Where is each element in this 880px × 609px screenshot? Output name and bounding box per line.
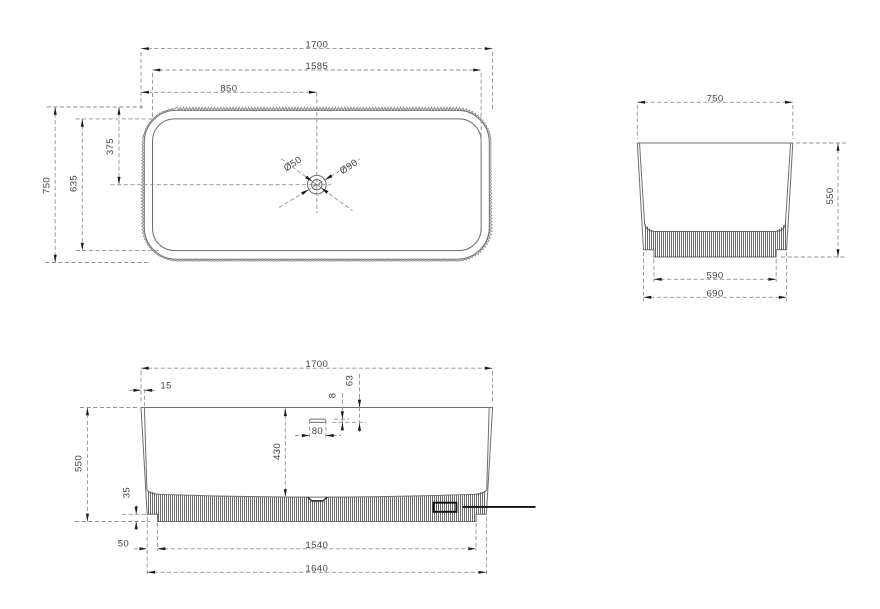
svg-text:15: 15: [160, 380, 171, 391]
svg-text:430: 430: [272, 443, 283, 460]
svg-text:590: 590: [706, 270, 723, 281]
svg-text:Ø50: Ø50: [282, 154, 304, 174]
svg-text:690: 690: [706, 288, 723, 299]
svg-text:635: 635: [69, 175, 80, 192]
svg-text:550: 550: [74, 455, 85, 472]
svg-text:375: 375: [105, 138, 116, 155]
svg-text:8: 8: [328, 393, 339, 399]
svg-text:1585: 1585: [305, 61, 328, 72]
svg-text:63: 63: [344, 375, 355, 386]
svg-text:35: 35: [121, 487, 132, 498]
svg-text:80: 80: [312, 426, 323, 437]
svg-text:1640: 1640: [305, 563, 328, 574]
svg-text:750: 750: [706, 93, 723, 104]
svg-text:750: 750: [41, 177, 52, 194]
svg-text:550: 550: [825, 187, 836, 204]
svg-text:50: 50: [118, 539, 129, 550]
svg-text:1700: 1700: [305, 359, 328, 370]
svg-text:1700: 1700: [305, 40, 328, 51]
svg-text:Ø90: Ø90: [338, 157, 360, 177]
svg-text:850: 850: [220, 83, 237, 94]
svg-text:1540: 1540: [305, 540, 328, 551]
